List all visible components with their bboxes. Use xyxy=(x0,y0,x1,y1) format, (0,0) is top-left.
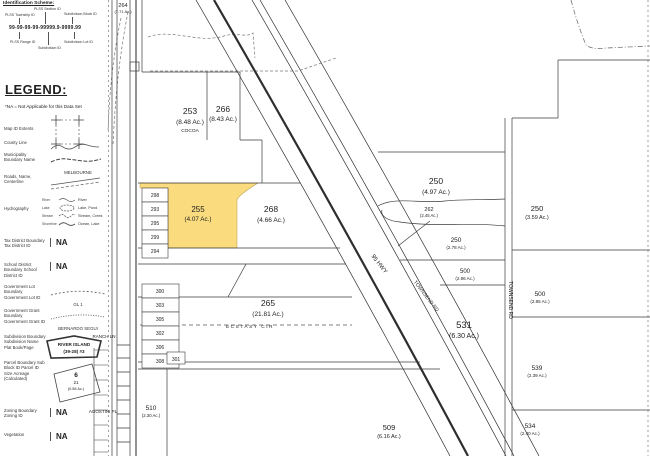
legend-item-label: Government Lot Boundary Government Lot I… xyxy=(4,284,46,300)
government-grant-symbol xyxy=(50,311,106,321)
road-label-townsend-vertical: TOWNSEND RD xyxy=(507,281,513,319)
connector-line xyxy=(74,32,75,39)
connector-line xyxy=(19,18,20,24)
parcel-acreage: (6.16 Ac.) xyxy=(377,434,401,440)
parcel-acreage: (8.43 Ac.) xyxy=(209,116,237,123)
legend-panel: Identification Scheme: PLSS Township ID … xyxy=(0,0,107,456)
id-scheme-format: 99-99-99-99-99999.9-9999.99 xyxy=(9,25,81,31)
parcel-acreage: (2.30 Ac.) xyxy=(142,413,161,418)
parcel-sample-block: 6 xyxy=(74,372,78,379)
legend-item-label: County Line xyxy=(4,140,46,145)
parcel-label: 268 xyxy=(264,204,278,214)
parcel-label: 509 xyxy=(383,423,396,432)
subdivision-sample-name: RIVER ISLAND xyxy=(58,342,91,347)
id-scheme-label: Subdivision Block ID xyxy=(64,12,97,16)
school-district-value: NA xyxy=(50,262,112,271)
municipality-boundary-symbol xyxy=(50,157,102,165)
road-label-95-hwy: 95 HWY xyxy=(370,254,388,275)
parcel-label: 266 xyxy=(216,104,230,114)
vegetation-value: NA xyxy=(50,432,112,441)
legend-item-label: School District Boundary School District… xyxy=(4,262,46,278)
parcel-acreage: (2.85 Ac.) xyxy=(530,299,550,304)
stream-symbol xyxy=(58,212,76,220)
parcel-label: 534 xyxy=(525,423,536,430)
map-id-scheme: Identification Scheme: PLSS Township ID … xyxy=(0,0,106,60)
parcel-label: 500 xyxy=(460,269,471,275)
legend-item-label: Hydrography xyxy=(4,206,46,211)
government-lot-symbol xyxy=(50,287,106,297)
parcel-acreage: (2.78 Ac.) xyxy=(446,245,466,250)
hydro-label: Stream, Creek xyxy=(78,214,102,218)
id-scheme-label: PLSS Range ID xyxy=(10,40,35,44)
connector-line xyxy=(72,17,73,24)
shoreline-symbol xyxy=(58,220,76,228)
scanned-parcel-map-page: { "idScheme": { "title": "Identification… xyxy=(0,0,650,456)
parcel-label: 250 xyxy=(531,204,544,213)
parcel-acreage: (4.97 Ac.) xyxy=(422,189,450,196)
parcel-acreage: (3.59 Ac.) xyxy=(525,215,549,221)
highlighted-parcel-label: 255 xyxy=(191,205,205,214)
highway-lines xyxy=(196,0,539,456)
id-scheme-label: Subdivision ID xyxy=(38,46,61,50)
legend-item-label: Tax District Boundary Tax District ID xyxy=(4,238,46,249)
parcel-acreage: (6.30 Ac.) xyxy=(449,333,479,340)
id-scheme-label: PLSS Section ID xyxy=(34,7,61,11)
legend-item-label: Government Grant Boundary Government Gra… xyxy=(4,308,46,324)
hydro-label: Ocean, Lake xyxy=(78,222,100,226)
id-scheme-title: Identification Scheme: xyxy=(3,1,54,6)
parcel-acreage: (8.48 Ac.) xyxy=(176,119,204,126)
parcel-acreage: (2.96 Ac.) xyxy=(455,276,475,281)
small-parcel-label: 305 xyxy=(156,317,165,323)
connector-line xyxy=(48,32,49,45)
municipality-boundary-line xyxy=(571,0,650,49)
small-parcel-label: 293 xyxy=(151,207,160,213)
municipality-label: COCOA xyxy=(181,128,199,134)
legend-item-label: Subdivision Boundary Subdivision Name Pl… xyxy=(4,334,46,350)
tax-district-value: NA xyxy=(50,238,112,247)
hydro-label: River xyxy=(78,198,87,202)
roads-symbol xyxy=(50,174,102,190)
legend-item-label: Roads, Name, Centerline xyxy=(4,174,46,185)
subdivision-sample-plat: (39-28) #3 xyxy=(63,349,85,354)
parcel-label: 510 xyxy=(146,405,157,412)
id-scheme-label: PLSS Township ID xyxy=(5,13,35,17)
small-parcel-label: 308 xyxy=(156,359,165,365)
road-label-ecstasy-cir: ECSTASY CIR xyxy=(226,324,274,330)
hydro-label: Lake, Pond xyxy=(78,206,97,210)
legend-note: *NA = Not Applicable for this Data Set xyxy=(5,104,82,109)
legend-title: LEGEND: xyxy=(5,82,67,97)
small-parcel-label: 299 xyxy=(151,235,160,241)
small-parcel-label: 301 xyxy=(172,357,181,363)
legend-item-label: Map ID Extents xyxy=(4,126,46,131)
small-parcel-label: 294 xyxy=(151,249,160,255)
parcel-boundary-lines xyxy=(130,60,650,456)
parcel-label: 250 xyxy=(451,237,462,244)
parcel-acreage: (4.66 Ac.) xyxy=(257,217,285,224)
parcel-label: 531 xyxy=(456,320,472,331)
government-grant-sample: BERNARDO SEGUI xyxy=(50,326,106,331)
small-parcel-label: 302 xyxy=(156,331,165,337)
government-lot-sample: GL 1 xyxy=(50,302,106,307)
lake-symbol xyxy=(58,204,76,212)
legend-item-label: Vegetation xyxy=(4,432,46,437)
highlighted-parcel-acreage: (4.07 Ac.) xyxy=(185,216,212,223)
legend-item-label: Parcel Boundary Sub Block ID Parcel ID S… xyxy=(4,360,46,381)
parcel-acreage: (2.45 Ac.) xyxy=(420,213,439,218)
small-parcel-label: 300 xyxy=(156,289,165,295)
parcel-label: 253 xyxy=(183,106,197,116)
connector-line xyxy=(45,12,46,24)
county-line-curves xyxy=(108,12,128,146)
small-parcel-label: 306 xyxy=(156,345,165,351)
parcel-label: 539 xyxy=(532,365,543,372)
parcel-label: 265 xyxy=(261,298,275,308)
hydro-sublabel: Shoreline xyxy=(42,222,58,226)
parcel-acreage: (21.81 Ac.) xyxy=(252,311,283,318)
id-scheme-label: Subdivision Lot ID xyxy=(64,40,93,44)
parcel-acreage: (2.39 Ac.) xyxy=(527,373,547,378)
parcel-acreage: (7.71 Ac.) xyxy=(114,9,132,14)
hydro-sublabel: River xyxy=(42,198,58,202)
zoning-value: NA xyxy=(50,408,112,417)
grant-boundary-lines xyxy=(148,33,336,71)
small-parcel-label: 303 xyxy=(156,303,165,309)
hydro-sublabel: Stream xyxy=(42,214,58,218)
parcel-sample-id: 21 xyxy=(73,380,79,385)
small-parcel-label: 298 xyxy=(151,193,160,199)
parcel-sample-symbol: 6 21 (0.58 Ac.) xyxy=(46,360,104,404)
connector-line xyxy=(19,32,20,39)
hydro-sublabel: Lake xyxy=(42,206,58,210)
river-symbol xyxy=(58,196,76,204)
small-parcel-label: 295 xyxy=(151,221,160,227)
subdivision-symbol: RIVER ISLAND (39-28) #3 xyxy=(44,334,104,360)
legend-item-label: Zoning Boundary Zoning ID xyxy=(4,408,46,419)
legend-item-label: Municipality Boundary Name xyxy=(4,152,46,163)
parcel-label: 250 xyxy=(429,176,443,186)
parcel-sample-acreage: (0.58 Ac.) xyxy=(68,387,85,391)
parcel-acreage: (2.40 Ac.) xyxy=(520,431,540,436)
parcel-label: 500 xyxy=(535,291,546,298)
